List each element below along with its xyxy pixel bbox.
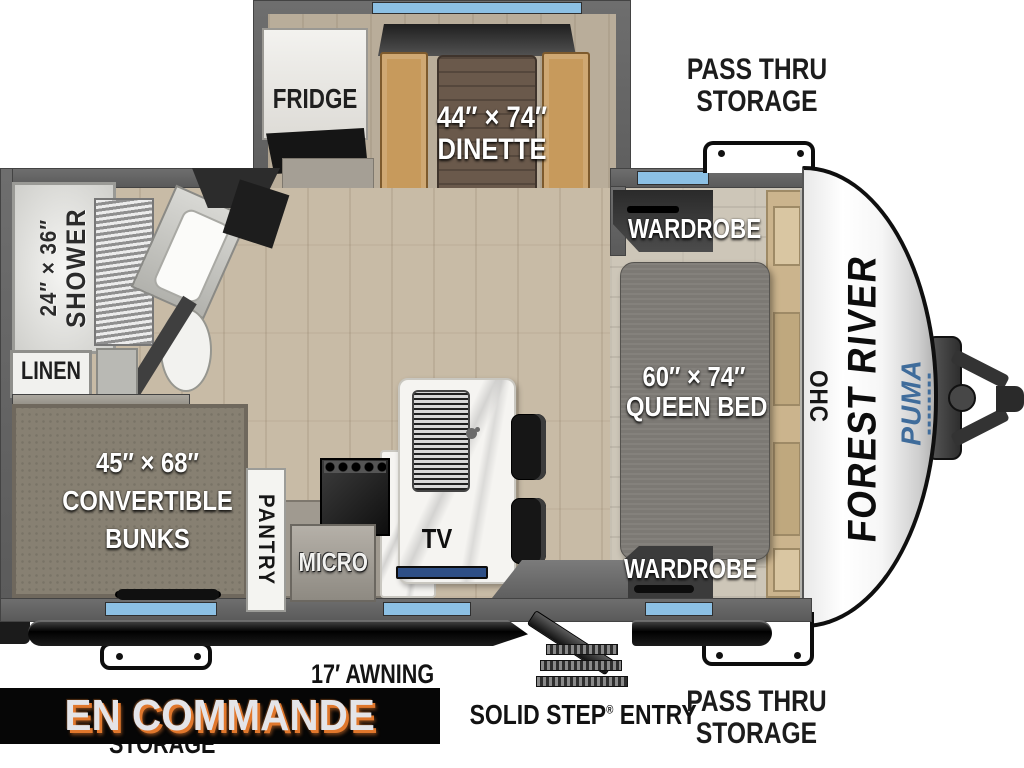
micro-label: MICRO: [299, 548, 368, 576]
shower-label: 24″ × 36″ SHOWER: [14, 186, 114, 350]
pass-thru-storage-top-label: PASS THRU STORAGE: [679, 54, 835, 119]
brand-forest-river: FOREST RIVER: [836, 180, 890, 616]
step-tread: [536, 676, 628, 687]
step-tread: [546, 644, 618, 655]
bottom-window-bunks: [105, 602, 217, 616]
screw-dot: [718, 150, 725, 157]
brand-puma-label: PUMA: [898, 359, 926, 445]
cabinet-panel: [773, 548, 801, 592]
brand-puma: PUMA: [896, 316, 932, 488]
awning-roller-right: [632, 620, 772, 646]
screw-dot: [194, 653, 201, 660]
pantry-label: PANTRY: [246, 470, 286, 610]
queen-bed-label: 60″ × 74″ QUEEN BED: [626, 362, 762, 422]
bunk-handle: [117, 589, 219, 600]
bunks-label: 45″ × 68″ CONVERTIBLE BUNKS: [56, 444, 239, 557]
status-banner-label: EN COMMANDE: [65, 691, 375, 741]
faucet: [466, 428, 477, 439]
dinette-label: 44″ × 74″ DINETTE: [407, 102, 577, 167]
linen-label: LINEN: [18, 358, 84, 385]
floorplan-image: FOREST RIVER PUMA FRIDGE 44″ × 74″ DINET…: [0, 0, 1024, 768]
cabinet-panel: [773, 206, 801, 266]
awning-roller-left: [28, 620, 528, 646]
wardrobe-bottom-label: WARDROBE: [624, 554, 752, 584]
brand-puma-underline: [928, 370, 931, 434]
bedroom-top-window: [637, 171, 709, 185]
bottom-window-kitchen: [383, 602, 471, 616]
status-banner: EN COMMANDE: [0, 688, 440, 744]
wardrobe-handle: [634, 585, 694, 593]
hitch-coupler: [996, 386, 1024, 412]
dinette-window: [372, 2, 582, 14]
wardrobe-top-label: WARDROBE: [628, 214, 756, 244]
screw-dot: [794, 652, 801, 659]
tv-unit: [396, 566, 488, 579]
step-tread: [540, 660, 622, 671]
stove-burners: [324, 461, 386, 473]
tv-label: TV: [414, 524, 460, 554]
solid-step-entry-label: SOLID STEP® ENTRY: [470, 700, 667, 730]
screw-dot: [797, 150, 804, 157]
bottom-window-bedroom: [645, 602, 713, 616]
ohc-label: OHC: [798, 360, 836, 432]
island-chair-1: [511, 414, 546, 480]
brand-forest-river-label: FOREST RIVER: [841, 252, 886, 544]
awning-label: 17′ AWNING: [311, 660, 431, 689]
entry-steps: [528, 614, 630, 692]
cabinet-panel: [773, 312, 801, 406]
pass-thru-door-top: [703, 141, 815, 173]
pass-thru-storage-bottom-label: PASS THRU STORAGE: [681, 686, 833, 751]
hitch-knuckle: [948, 384, 976, 412]
sink-cover: [412, 390, 470, 492]
cabinet-panel: [773, 442, 801, 536]
screw-dot: [116, 653, 123, 660]
island-chair-2: [511, 498, 546, 564]
fridge-label: FRIDGE: [273, 84, 358, 114]
screw-dot: [716, 652, 723, 659]
cabinet-handle: [627, 206, 679, 213]
